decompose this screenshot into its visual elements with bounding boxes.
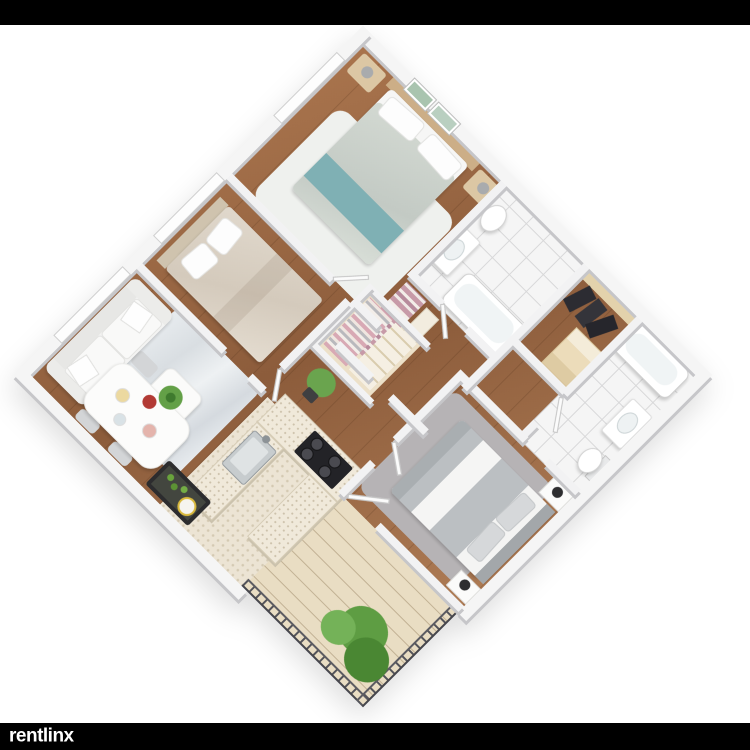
rentlinx-logo: rentlinx [9, 725, 74, 747]
bottom-black-bar: rentlinx [0, 723, 750, 750]
top-black-bar [0, 0, 750, 25]
floorplan [31, 43, 696, 708]
screenshot-canvas: rentlinx [0, 0, 750, 750]
